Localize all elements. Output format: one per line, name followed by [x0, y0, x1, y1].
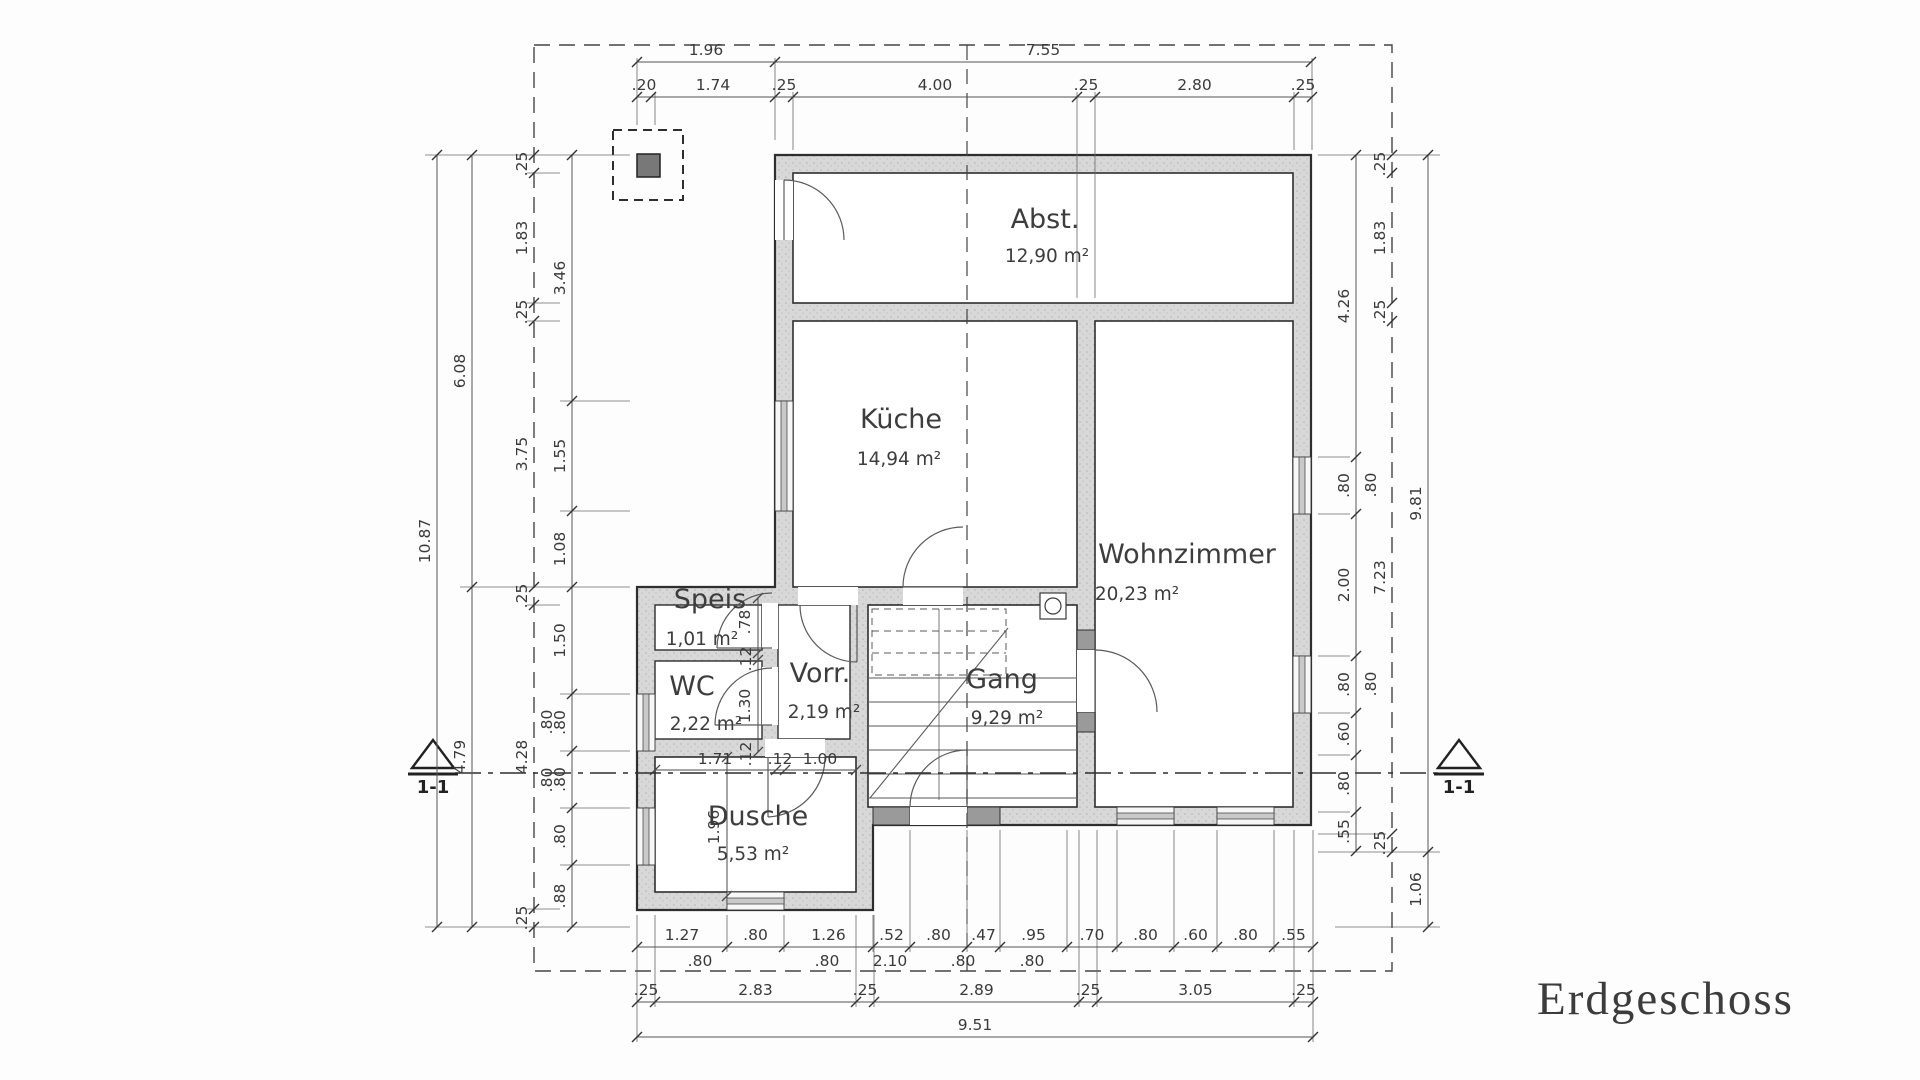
dim-label: 2.83 [738, 981, 773, 999]
dim-label: .80 [1020, 952, 1045, 970]
room-label-wc: WC [669, 671, 715, 702]
dim-label: .25 [1371, 300, 1389, 325]
room-area-wohnzimmer: 20,23 m² [1095, 584, 1179, 605]
dim-label: .88 [551, 884, 569, 909]
dim-label: 3.75 [513, 437, 531, 472]
floor-plan-page: 1-1 1-1 Abst. 12,90 m² Küche 14,94 m² Wo… [0, 0, 1920, 1080]
floor-plan-drawing: 1-1 1-1 Abst. 12,90 m² Küche 14,94 m² Wo… [0, 0, 1920, 1080]
dim-label: .80 [538, 710, 556, 735]
dim-label: 1.71 [698, 750, 733, 768]
dim-label: .12 [768, 750, 793, 768]
room-abst [793, 173, 1293, 303]
dim-label: .25 [634, 981, 659, 999]
dim-label: 1.96 [705, 810, 723, 845]
room-label-kueche: Küche [860, 404, 942, 435]
dim-label: 4.79 [451, 740, 469, 775]
dim-label: .80 [815, 952, 840, 970]
dim-label: 4.28 [513, 740, 531, 775]
wall-post [1077, 712, 1095, 732]
dim-label: .60 [1335, 722, 1353, 747]
window [1293, 656, 1311, 713]
room-label-abst: Abst. [1011, 204, 1080, 235]
dim-label: .25 [1291, 981, 1316, 999]
dim-label: .80 [1335, 771, 1353, 796]
dim-label: 2.00 [1335, 568, 1353, 603]
dim-label: 9.81 [1407, 486, 1425, 521]
wall-post [873, 807, 910, 825]
dim-label: 1.06 [1407, 872, 1425, 907]
dim-label: .80 [1133, 926, 1158, 944]
dim-label: .12 [737, 647, 755, 672]
dim-label: .80 [743, 926, 768, 944]
room-label-vorraum: Vorr. [790, 658, 851, 689]
dim-label: .80 [1362, 473, 1380, 498]
dim-label: .25 [513, 584, 531, 609]
dim-label: 3.46 [551, 261, 569, 296]
dim-label: 10.87 [416, 519, 434, 563]
wall-post [1077, 630, 1095, 650]
window [727, 892, 784, 910]
dim-label: .60 [1183, 926, 1208, 944]
room-area-abst: 12,90 m² [1005, 246, 1089, 267]
dim-label: 1.83 [1371, 221, 1389, 256]
dim-label: 6.08 [451, 354, 469, 389]
window [775, 401, 793, 511]
dim-label: .47 [971, 926, 996, 944]
dim-label: 2.80 [1177, 76, 1212, 94]
dim-label: 9.51 [958, 1016, 993, 1034]
dim-label: 3.05 [1178, 981, 1213, 999]
dim-label: 2.89 [959, 981, 994, 999]
dim-label: .25 [1074, 76, 1099, 94]
window [637, 808, 655, 865]
dim-label: 4.26 [1335, 289, 1353, 324]
dim-label: .25 [772, 76, 797, 94]
window [1217, 807, 1274, 825]
room-area-wc: 2,22 m² [670, 714, 743, 735]
dim-label: 1.83 [513, 221, 531, 256]
dim-label: 1.50 [551, 623, 569, 658]
dim-label: 1.55 [551, 439, 569, 474]
window [1293, 457, 1311, 514]
room-gang [868, 605, 1077, 807]
dim-label: .12 [737, 742, 755, 767]
room-label-wohnzimmer: Wohnzimmer [1098, 539, 1277, 570]
dim-label: 1.30 [736, 689, 754, 724]
dim-label: .80 [1335, 473, 1353, 498]
dim-label: .25 [513, 300, 531, 325]
chimney [613, 130, 683, 200]
dim-label: 1.96 [689, 41, 724, 59]
dim-label: 1.74 [696, 76, 731, 94]
room-area-dusche: 5,53 m² [717, 844, 790, 865]
dim-label: 7.55 [1026, 41, 1061, 59]
window [1117, 807, 1174, 825]
dim-label: .70 [1080, 926, 1105, 944]
dim-label: .25 [853, 981, 878, 999]
room-area-vorraum: 2,19 m² [788, 702, 861, 723]
dim-label: .52 [879, 926, 904, 944]
room-label-gang: Gang [966, 664, 1038, 695]
dim-label: .80 [688, 952, 713, 970]
dim-label: .20 [632, 76, 657, 94]
dim-label: 1.00 [803, 750, 838, 768]
room-area-speis: 1,01 m² [666, 629, 739, 650]
dim-label: .78 [736, 610, 754, 635]
dim-label: 1.08 [551, 532, 569, 567]
dim-label: .25 [1291, 76, 1316, 94]
drain-symbol [1040, 593, 1066, 619]
dim-label: .25 [1371, 831, 1389, 856]
dim-label: .80 [1233, 926, 1258, 944]
dim-label: .25 [513, 152, 531, 177]
dim-label: 2.10 [873, 952, 908, 970]
drawing-title: Erdgeschoss [1537, 972, 1907, 1026]
dim-label: .25 [1371, 152, 1389, 177]
dim-label: .55 [1281, 926, 1306, 944]
wall-post [967, 807, 1000, 825]
section-label-left: 1-1 [417, 777, 450, 798]
walls [637, 155, 1311, 910]
dim-label: .80 [926, 926, 951, 944]
dim-label: .80 [551, 824, 569, 849]
section-marker-right [1434, 740, 1484, 774]
dim-label: .80 [1335, 672, 1353, 697]
dim-label: .80 [951, 952, 976, 970]
dim-label: .80 [1362, 672, 1380, 697]
dim-label: 4.00 [918, 76, 953, 94]
dim-label: 1.27 [665, 926, 700, 944]
section-label-right: 1-1 [1443, 777, 1476, 798]
dim-label: .25 [513, 906, 531, 931]
dim-label: .55 [1335, 819, 1353, 844]
room-area-gang: 9,29 m² [971, 708, 1044, 729]
window [637, 694, 655, 751]
dim-label: .95 [1021, 926, 1046, 944]
dim-label: .80 [538, 768, 556, 793]
room-area-kueche: 14,94 m² [857, 449, 941, 470]
dim-label: 7.23 [1371, 560, 1389, 595]
dim-label: 1.26 [811, 926, 846, 944]
dim-label: .25 [1076, 981, 1101, 999]
